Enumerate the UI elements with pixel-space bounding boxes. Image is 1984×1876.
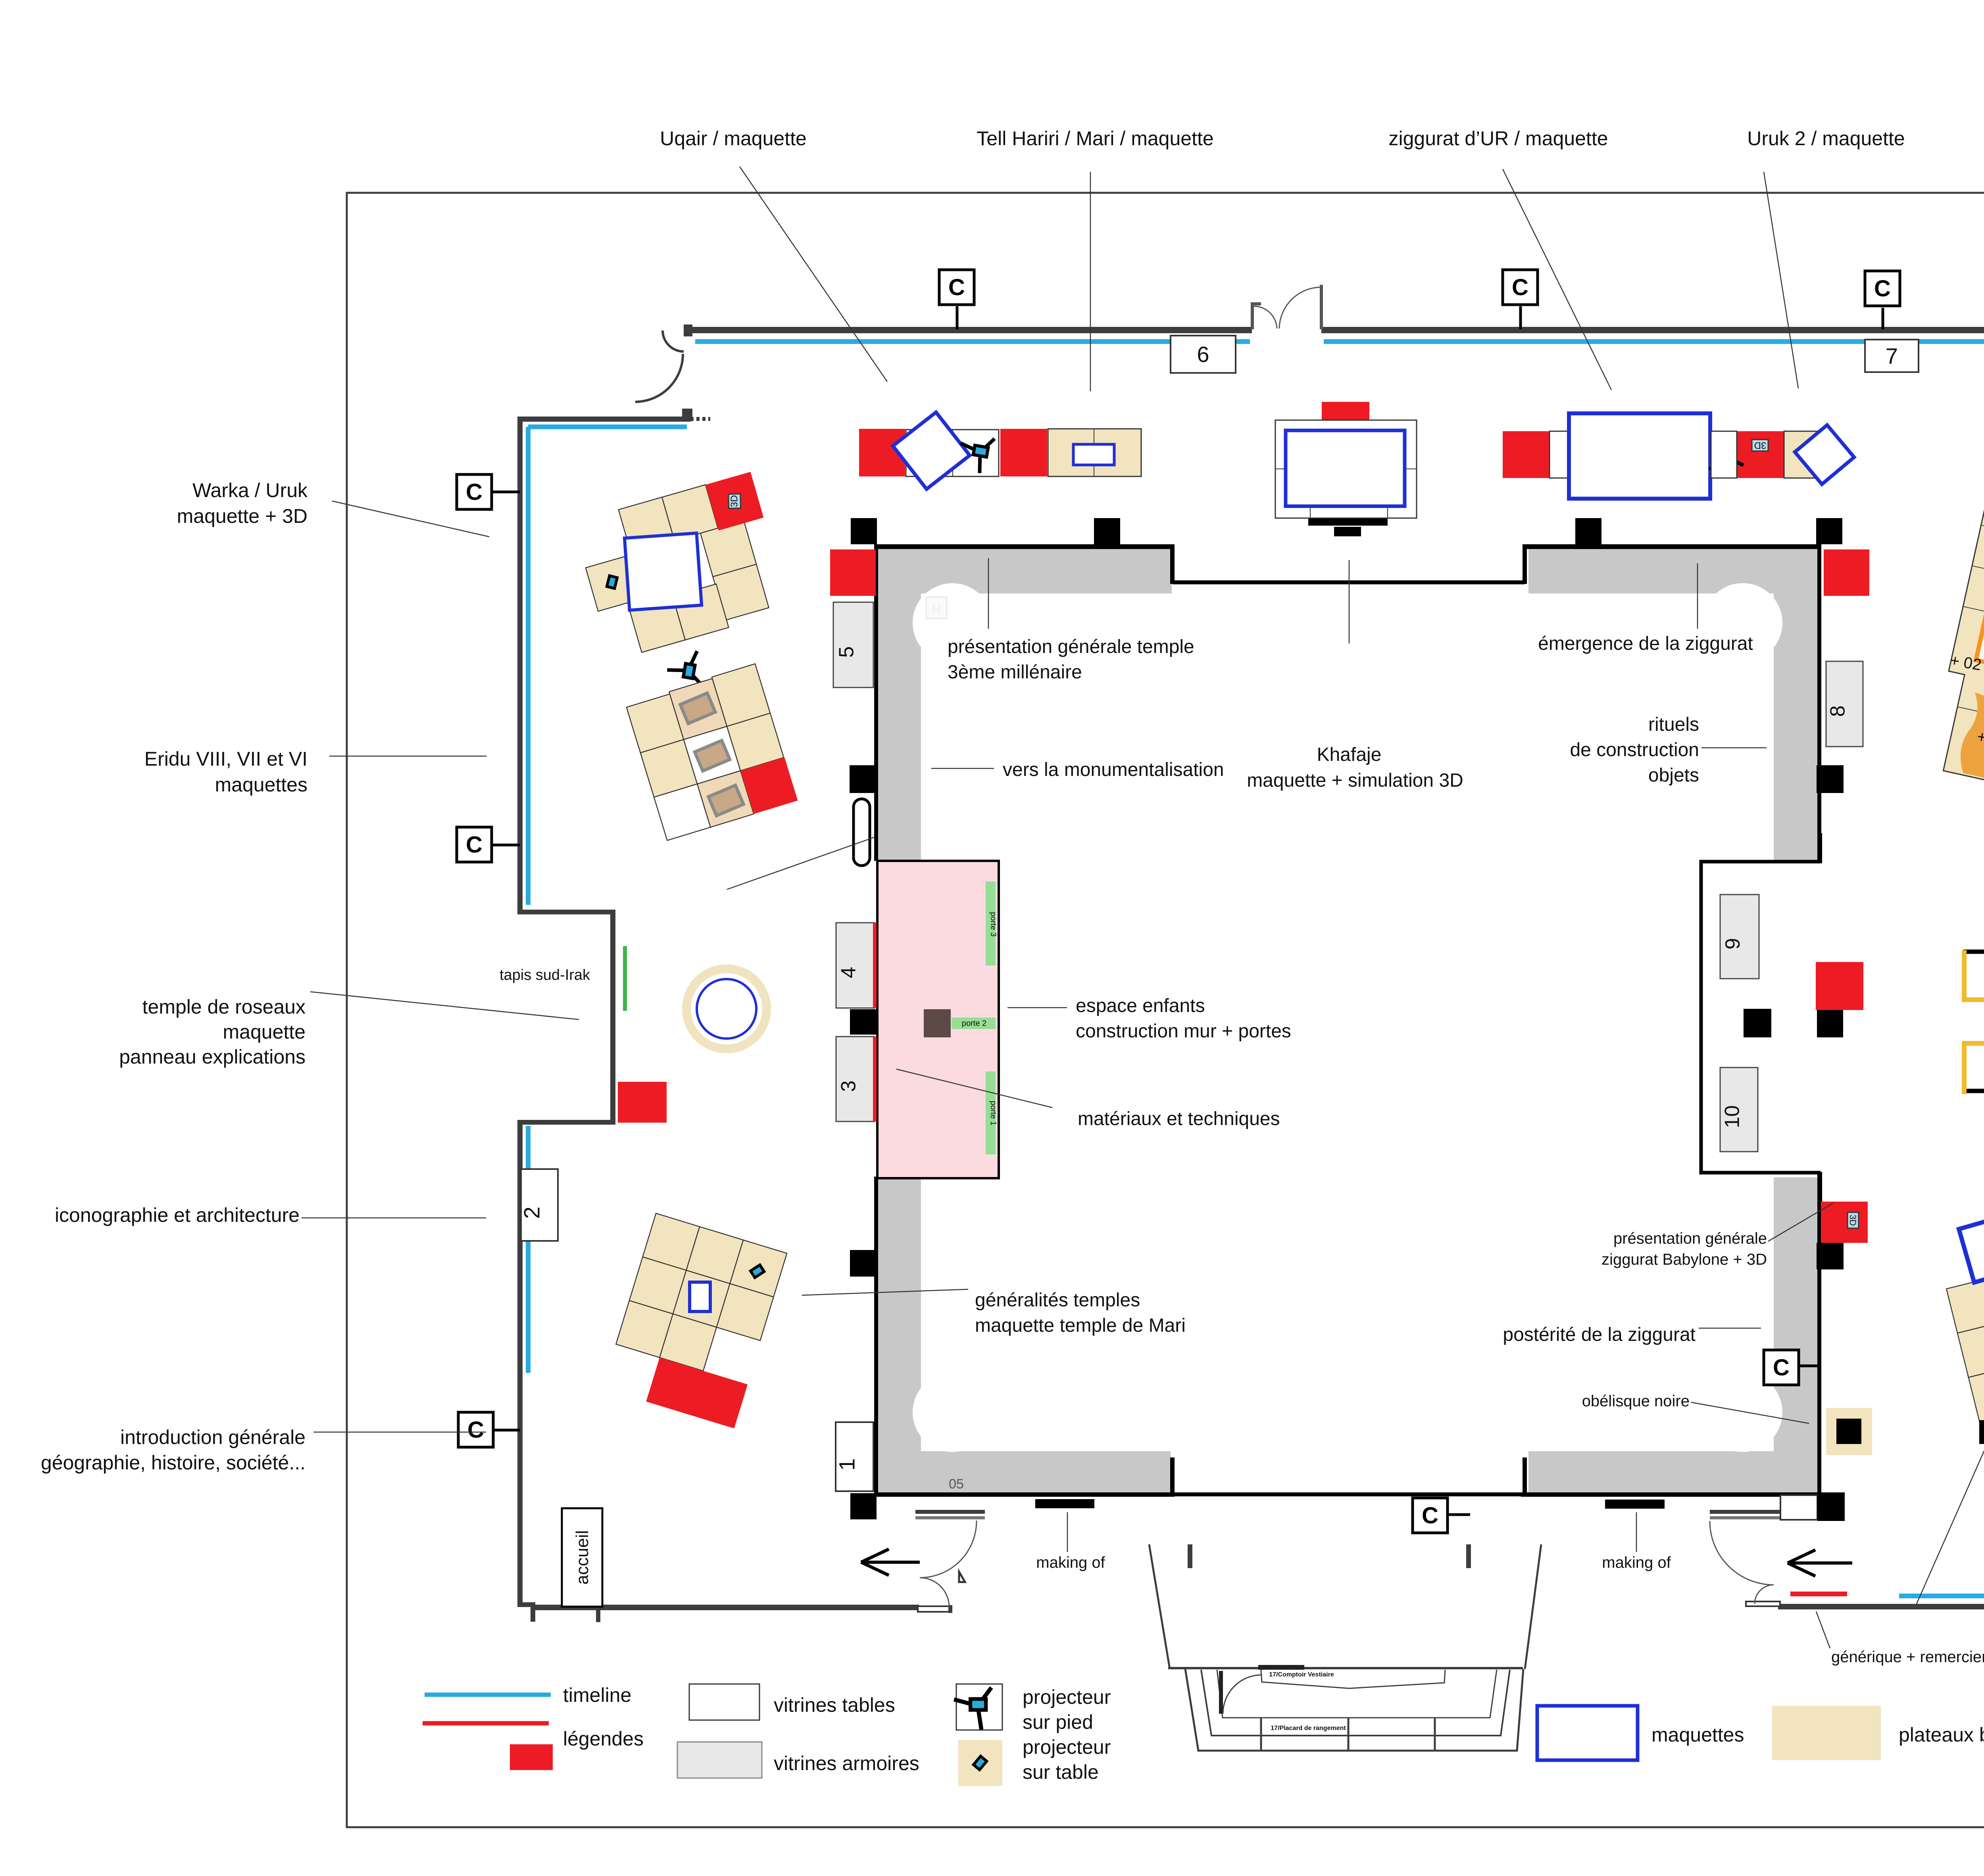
svg-text:Uruk 2 / maquette: Uruk 2 / maquette bbox=[1747, 127, 1905, 150]
svg-text:présentation générale temple: présentation générale temple bbox=[948, 636, 1194, 657]
svg-text:émergence de la ziggurat: émergence de la ziggurat bbox=[1538, 633, 1753, 654]
svg-text:sur table: sur table bbox=[1023, 1761, 1099, 1783]
svg-text:Tell Hariri / Mari / maquette: Tell Hariri / Mari / maquette bbox=[977, 127, 1213, 150]
svg-text:C: C bbox=[948, 275, 965, 300]
svg-text:maquette + 3D: maquette + 3D bbox=[177, 505, 308, 527]
svg-text:généralités temples: généralités temples bbox=[975, 1290, 1140, 1311]
svg-text:1: 1 bbox=[834, 1458, 859, 1471]
svg-text:2: 2 bbox=[519, 1207, 544, 1219]
svg-text:iconographie et architecture: iconographie et architecture bbox=[55, 1204, 300, 1226]
svg-text:vitrines tables: vitrines tables bbox=[774, 1694, 895, 1716]
svg-text:7: 7 bbox=[1886, 344, 1898, 369]
svg-text:3D: 3D bbox=[729, 495, 740, 507]
svg-text:ziggurat Babylone + 3D: ziggurat Babylone + 3D bbox=[1601, 1251, 1767, 1268]
svg-text:Khafaje: Khafaje bbox=[1317, 744, 1382, 765]
svg-text:timeline: timeline bbox=[563, 1684, 631, 1706]
svg-text:making of: making of bbox=[1602, 1554, 1671, 1571]
svg-text:sur pied: sur pied bbox=[1023, 1711, 1093, 1733]
svg-text:10: 10 bbox=[1721, 1105, 1744, 1128]
svg-text:légendes: légendes bbox=[563, 1728, 644, 1750]
svg-text:Uqair / maquette: Uqair / maquette bbox=[660, 127, 807, 150]
svg-text:temple de roseaux: temple de roseaux bbox=[142, 996, 306, 1018]
svg-text:maquettes: maquettes bbox=[1651, 1724, 1744, 1746]
svg-text:vitrines armoires: vitrines armoires bbox=[774, 1752, 919, 1774]
svg-text:maquette + simulation 3D: maquette + simulation 3D bbox=[1247, 770, 1463, 791]
svg-text:05: 05 bbox=[949, 1477, 964, 1492]
svg-text:vers la monumentalisation: vers la monumentalisation bbox=[1003, 759, 1224, 780]
svg-text:plateaux bois: plateaux bois bbox=[1899, 1724, 1984, 1746]
svg-text:de construction: de construction bbox=[1570, 739, 1699, 760]
svg-text:Eridu VIII, VII et VI: Eridu VIII, VII et VI bbox=[144, 748, 308, 770]
svg-text:générique + remerciements: générique + remerciements bbox=[1831, 1648, 1984, 1666]
svg-text:17/Comptoir Vestiaire: 17/Comptoir Vestiaire bbox=[1269, 1671, 1334, 1678]
svg-text:C: C bbox=[466, 832, 483, 858]
svg-text:construction mur + portes: construction mur + portes bbox=[1076, 1021, 1291, 1042]
svg-text:5: 5 bbox=[835, 646, 858, 658]
svg-text:obélisque noire: obélisque noire bbox=[1582, 1392, 1690, 1410]
svg-text:9: 9 bbox=[1721, 938, 1744, 950]
svg-text:maquette: maquette bbox=[223, 1021, 306, 1043]
svg-text:maquettes: maquettes bbox=[215, 774, 308, 796]
svg-text:matériaux et techniques: matériaux et techniques bbox=[1078, 1108, 1280, 1129]
svg-text:Warka / Uruk: Warka / Uruk bbox=[192, 479, 308, 501]
svg-text:rituels: rituels bbox=[1648, 714, 1699, 735]
svg-text:C: C bbox=[466, 479, 483, 505]
svg-text:8: 8 bbox=[1826, 705, 1849, 717]
svg-text:4: 4 bbox=[837, 967, 860, 978]
svg-text:présentation générale: présentation générale bbox=[1613, 1230, 1767, 1247]
svg-text:C: C bbox=[1422, 1503, 1438, 1528]
svg-text:C: C bbox=[1773, 1355, 1790, 1381]
svg-text:porte 3: porte 3 bbox=[989, 912, 998, 937]
svg-text:C: C bbox=[1874, 276, 1891, 301]
svg-text:maquette temple de Mari: maquette temple de Mari bbox=[975, 1315, 1186, 1336]
svg-text:C: C bbox=[1512, 275, 1528, 300]
svg-text:porte 1: porte 1 bbox=[989, 1101, 998, 1125]
svg-text:géographie, histoire, société.: géographie, histoire, société... bbox=[41, 1452, 306, 1474]
svg-text:porte 2: porte 2 bbox=[962, 1019, 986, 1028]
svg-text:projecteur: projecteur bbox=[1023, 1686, 1111, 1708]
svg-text:panneau explications: panneau explications bbox=[119, 1046, 306, 1068]
svg-text:projecteur: projecteur bbox=[1023, 1736, 1111, 1758]
svg-text:introduction générale: introduction générale bbox=[120, 1426, 306, 1448]
svg-text:espace enfants: espace enfants bbox=[1076, 995, 1205, 1016]
svg-text:3D: 3D bbox=[1848, 1215, 1858, 1226]
svg-text:3D: 3D bbox=[1754, 440, 1767, 451]
svg-text:ziggurat d’UR / maquette: ziggurat d’UR / maquette bbox=[1388, 127, 1608, 150]
svg-text:tapis sud-Irak: tapis sud-Irak bbox=[500, 967, 590, 983]
svg-text:accueil: accueil bbox=[573, 1530, 592, 1585]
svg-text:making of: making of bbox=[1036, 1554, 1105, 1571]
svg-text:C: C bbox=[467, 1417, 484, 1443]
svg-text:6: 6 bbox=[1197, 342, 1209, 367]
svg-text:objets: objets bbox=[1648, 765, 1699, 786]
svg-text:3: 3 bbox=[837, 1081, 860, 1092]
svg-text:postérité de la ziggurat: postérité de la ziggurat bbox=[1503, 1324, 1696, 1345]
svg-text:3ème millénaire: 3ème millénaire bbox=[948, 662, 1082, 683]
svg-text:H: H bbox=[932, 603, 941, 616]
svg-text:17/Placard de rangement: 17/Placard de rangement bbox=[1271, 1725, 1346, 1732]
